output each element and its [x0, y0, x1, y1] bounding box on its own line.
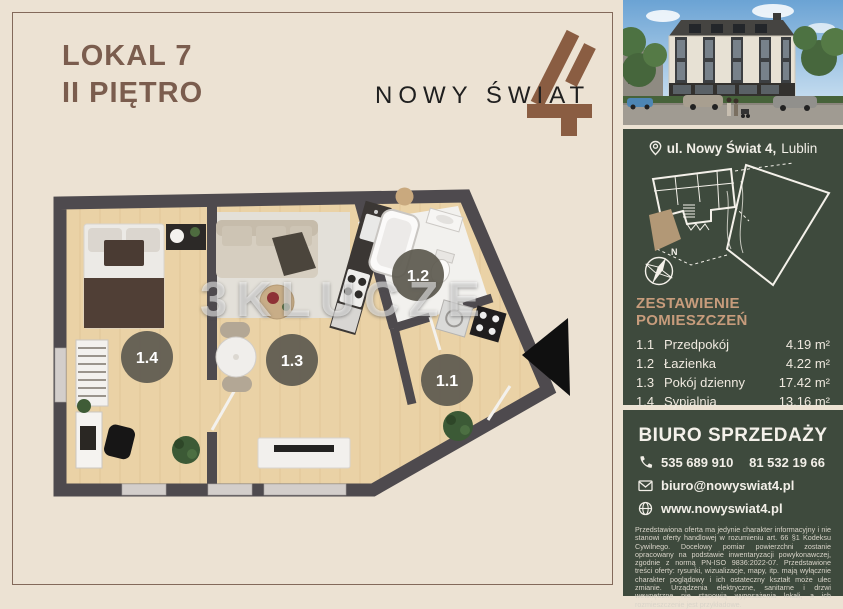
unit-highlight	[649, 209, 681, 251]
room-area: 13.16 m²	[779, 392, 830, 411]
table-row: 1.4 Sypialnia 13.16 m²	[636, 392, 830, 411]
room-badge-1-3: 1.3	[281, 353, 303, 370]
address-city: Lublin	[781, 141, 817, 156]
email[interactable]: biuro@nowyswiat4.pl	[661, 478, 794, 493]
website-row: www.nowyswiat4.pl	[638, 501, 825, 516]
globe-icon	[638, 501, 653, 516]
phone-icon	[638, 455, 653, 470]
site-plan: N	[631, 161, 836, 293]
room-area: 4.19 m²	[786, 335, 830, 354]
website[interactable]: www.nowyswiat4.pl	[661, 501, 783, 516]
right-column: ul. Nowy Świat 4, Lublin	[623, 0, 843, 596]
room-no: 1.4	[636, 392, 664, 411]
nightstand	[166, 224, 206, 250]
room-area: 4.22 m²	[786, 354, 830, 373]
phone-primary[interactable]: 535 689 910	[661, 455, 733, 470]
brand-name: NOWY ŚWIAT	[375, 82, 590, 110]
sofa	[216, 220, 318, 278]
brand-logo: NOWY ŚWIAT	[370, 0, 620, 150]
phone-secondary[interactable]: 81 532 19 66	[749, 455, 825, 470]
plant-hallway	[443, 411, 473, 441]
compass-north-label: N	[671, 247, 678, 257]
info-panel: ul. Nowy Świat 4, Lublin	[623, 129, 843, 405]
wardrobe	[76, 340, 108, 406]
legal-disclaimer: Przedstawiona oferta ma jedynie charakte…	[635, 526, 831, 609]
table-row: 1.2 Łazienka 4.22 m²	[636, 354, 830, 373]
email-row: biuro@nowyswiat4.pl	[638, 478, 825, 493]
phone-row: 535 689 910 81 532 19 66	[638, 455, 825, 470]
flyer-page: LOKAL 7 II PIĘTRO NOWY ŚWIAT	[0, 0, 843, 596]
room-badge-1-4: 1.4	[136, 350, 158, 367]
watermark: 3KLUCZE	[200, 272, 489, 328]
floor-title: II PIĘTRO	[62, 75, 203, 112]
room-name: Sypialnia	[664, 392, 779, 411]
room-no: 1.3	[636, 373, 664, 392]
room-name: Łazienka	[664, 354, 786, 373]
tv-cabinet	[258, 438, 350, 468]
table-row: 1.1 Przedpokój 4.19 m²	[636, 335, 830, 354]
location-pin-icon	[649, 140, 662, 156]
room-name: Pokój dzienny	[664, 373, 779, 392]
sales-office-title: BIURO SPRZEDAŻY	[623, 425, 843, 447]
plant-bedroom-door	[172, 436, 200, 464]
room-no: 1.1	[636, 335, 664, 354]
room-name: Przedpokój	[664, 335, 786, 354]
rooms-table-title: ZESTAWIENIE POMIESZCZEŃ	[636, 295, 830, 329]
header-titles: LOKAL 7 II PIĘTRO	[62, 38, 203, 112]
room-area: 17.42 m²	[779, 373, 830, 392]
compass-icon: N	[638, 247, 679, 291]
room-no: 1.2	[636, 354, 664, 373]
mail-icon	[638, 479, 653, 492]
address: ul. Nowy Świat 4, Lublin	[623, 129, 843, 156]
room-badge-1-1: 1.1	[436, 373, 458, 390]
unit-title: LOKAL 7	[62, 38, 203, 75]
address-street: ul. Nowy Świat 4,	[667, 141, 777, 156]
floor-plan: 1.1 1.2 1.3 1.4	[40, 180, 620, 520]
building-photo	[623, 0, 843, 125]
bed	[84, 224, 164, 328]
sales-office-panel: BIURO SPRZEDAŻY 535 689 910 81 532 19 66…	[623, 410, 843, 596]
table-row: 1.3 Pokój dzienny 17.42 m²	[636, 373, 830, 392]
